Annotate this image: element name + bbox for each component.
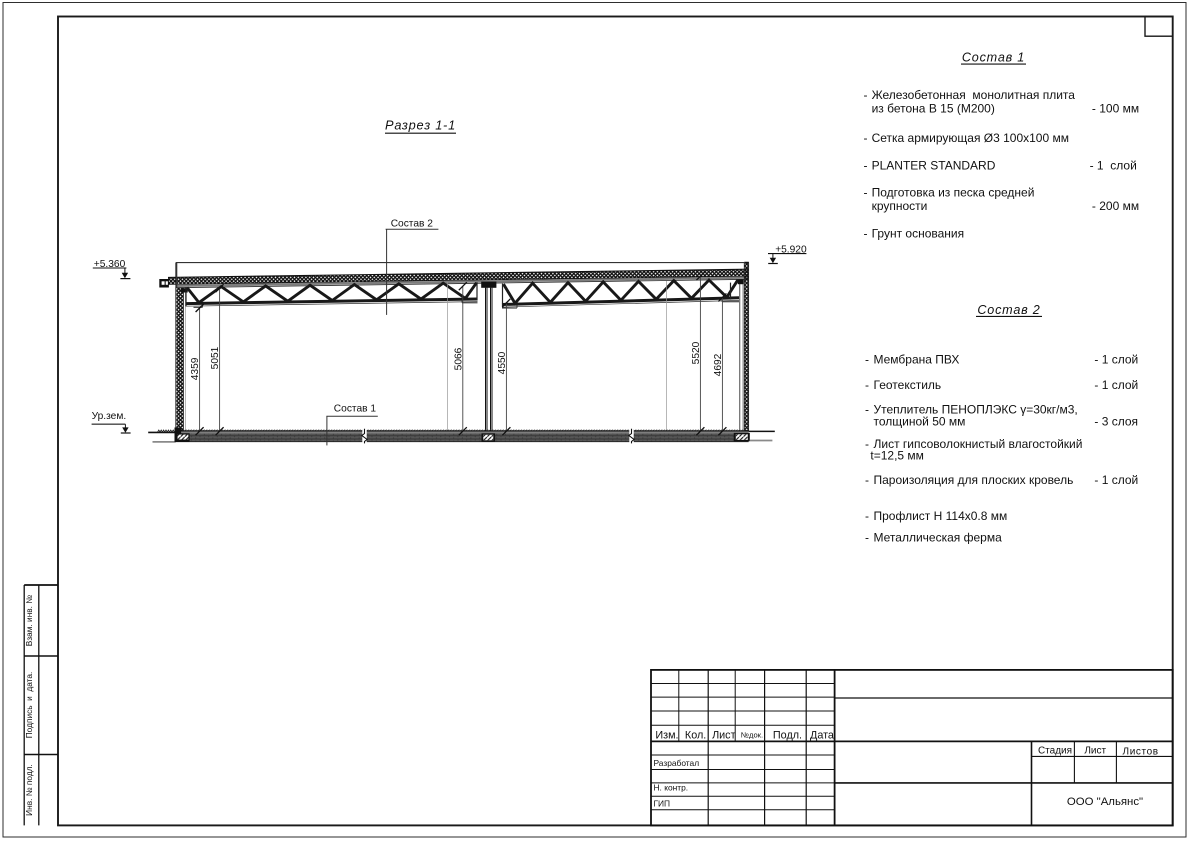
svg-text:4692: 4692 [713, 353, 724, 376]
svg-text:-: - [865, 437, 869, 451]
svg-text:5051: 5051 [210, 346, 221, 369]
svg-text:Подготовка из песка средней: Подготовка из песка средней [872, 186, 1035, 200]
svg-text:Состав 2: Состав 2 [391, 218, 434, 229]
svg-text:Профлист Н 114х0.8 мм: Профлист Н 114х0.8 мм [874, 509, 1008, 523]
svg-text:-: - [865, 509, 869, 523]
svg-text:ГИП: ГИП [654, 799, 671, 809]
svg-text:Сетка армирующая Ø3 100х100 мм: Сетка армирующая Ø3 100х100 мм [872, 131, 1069, 145]
svg-text:PLANTER STANDARD: PLANTER STANDARD [872, 159, 996, 173]
svg-text:- 3 слоя: - 3 слоя [1094, 415, 1138, 429]
svg-text:-: - [865, 352, 869, 366]
svg-text:Подпись и дата.: Подпись и дата. [24, 672, 34, 739]
svg-text:- 1 слой: - 1 слой [1094, 352, 1138, 366]
svg-text:Грунт основания: Грунт основания [872, 227, 965, 241]
svg-text:t=12,5 мм: t=12,5 мм [870, 449, 924, 463]
svg-text:Лист: Лист [1084, 745, 1106, 756]
svg-text:- 1 слой: - 1 слой [1094, 473, 1138, 487]
svg-text:+5.360: +5.360 [94, 259, 126, 270]
svg-text:Геотекстиль: Геотекстиль [874, 378, 942, 392]
svg-text:Изм.: Изм. [655, 729, 678, 741]
svg-text:5520: 5520 [691, 341, 702, 364]
svg-text:-: - [865, 378, 869, 392]
svg-text:Лист: Лист [712, 729, 736, 741]
svg-text:Состав 1: Состав 1 [962, 51, 1025, 65]
svg-text:Подл.: Подл. [773, 729, 802, 741]
svg-text:крупности: крупности [872, 199, 928, 213]
svg-text:Кол.: Кол. [685, 729, 706, 741]
svg-text:Листов: Листов [1123, 746, 1159, 757]
svg-text:-: - [864, 159, 868, 173]
svg-text:- 200 мм: - 200 мм [1092, 199, 1139, 213]
svg-text:-: - [864, 227, 868, 241]
svg-text:Металлическая ферма: Металлическая ферма [874, 531, 1003, 545]
svg-text:Пароизоляция для плоских крове: Пароизоляция для плоских кровель [874, 473, 1074, 487]
svg-text:Разработал: Разработал [654, 758, 700, 768]
svg-text:Н. контр.: Н. контр. [654, 782, 689, 792]
svg-text:-: - [864, 186, 868, 200]
svg-text:Состав 2: Состав 2 [977, 303, 1040, 317]
svg-text:4550: 4550 [497, 351, 508, 374]
svg-text:Состав 1: Состав 1 [334, 404, 377, 415]
svg-text:Дата: Дата [810, 729, 834, 741]
svg-text:- 1 слой: - 1 слой [1094, 378, 1138, 392]
svg-text:Разрез 1-1: Разрез 1-1 [385, 118, 456, 133]
svg-text:№док.: №док. [741, 731, 763, 740]
svg-text:-: - [865, 473, 869, 487]
svg-text:4359: 4359 [190, 357, 201, 380]
svg-text:-: - [865, 531, 869, 545]
svg-text:Железобетонная монолитная пли: Железобетонная монолитная плита [872, 88, 1076, 102]
svg-text:- 1 слой: - 1 слой [1090, 159, 1137, 173]
svg-text:- 100 мм: - 100 мм [1092, 102, 1139, 116]
svg-text:Взам. инв. №: Взам. инв. № [24, 595, 34, 647]
svg-text:Инв. № подл.: Инв. № подл. [24, 764, 34, 816]
svg-text:Мембрана ПВХ: Мембрана ПВХ [874, 352, 960, 366]
svg-text:Стадия: Стадия [1038, 745, 1072, 756]
svg-text:толщиной 50 мм: толщиной 50 мм [874, 415, 966, 429]
svg-text:-: - [864, 131, 868, 145]
svg-text:из бетона В 15 (М200): из бетона В 15 (М200) [872, 102, 995, 116]
svg-text:ООО "Альянс": ООО "Альянс" [1067, 796, 1143, 808]
svg-text:Ур.зем.: Ур.зем. [92, 411, 127, 422]
svg-text:5066: 5066 [453, 347, 464, 370]
svg-text:-: - [865, 403, 869, 417]
svg-text:-: - [864, 88, 868, 102]
